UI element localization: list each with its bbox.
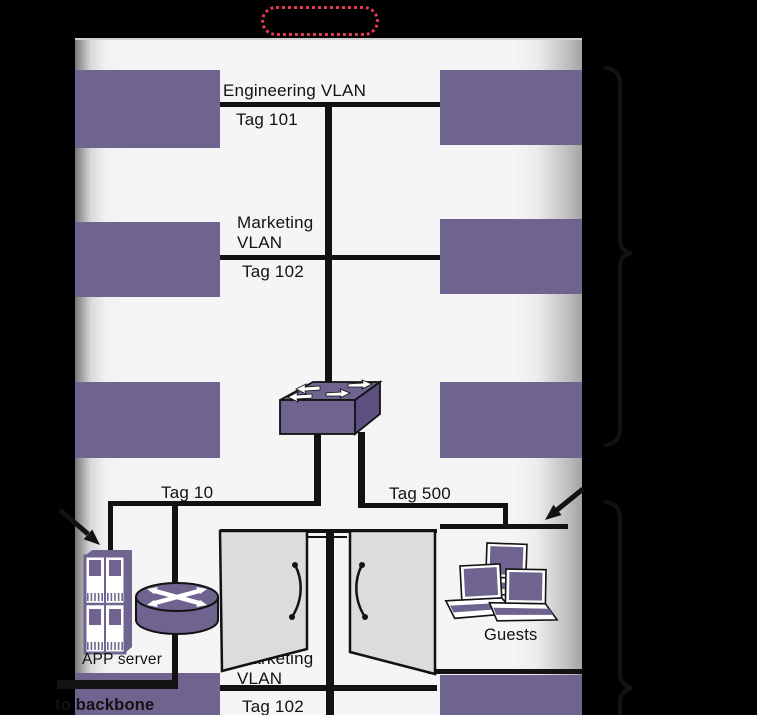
backbone-line xyxy=(57,680,178,689)
server-icon xyxy=(85,550,132,653)
brace-lobby xyxy=(606,502,632,715)
marketing-vlan-label: Marketing VLAN xyxy=(237,213,313,253)
tag-10-label: Tag 10 xyxy=(161,483,213,503)
pointer-arrow-left xyxy=(60,510,100,545)
floor-block xyxy=(440,219,582,294)
guest-drop-line xyxy=(503,503,508,527)
brace-upper-floors xyxy=(606,68,632,445)
server-drop-line xyxy=(108,501,113,556)
arrow-shaft xyxy=(557,489,583,510)
router-icon xyxy=(136,583,218,634)
floor-block xyxy=(440,382,582,458)
tag-102-label: Tag 102 xyxy=(242,262,304,282)
vlan-physical-diagram: Marketing VLAN xyxy=(0,0,757,715)
marketing-vlan-line1: Marketing xyxy=(237,213,313,233)
lobby-vlan-label: VLAN xyxy=(237,669,282,688)
floor-block xyxy=(440,675,582,715)
guest-floor-line xyxy=(428,669,582,674)
guest-segment-line xyxy=(440,524,568,529)
switch-icon xyxy=(280,380,380,434)
server-drive xyxy=(109,560,121,576)
trunk-line-upper xyxy=(325,102,332,384)
right-door xyxy=(350,531,435,674)
handle-dot xyxy=(289,614,295,620)
laptop-screen xyxy=(509,572,542,601)
handle-dot xyxy=(359,562,365,568)
server-drive xyxy=(89,560,101,576)
server-drive xyxy=(109,609,121,625)
floor-block xyxy=(75,222,220,297)
switch-front xyxy=(280,400,355,434)
app-server-label: APP server xyxy=(82,650,162,670)
guest-laptops-icon xyxy=(444,542,558,621)
marketing-vlan-line2: VLAN xyxy=(237,233,313,253)
arrow-shaft xyxy=(60,510,88,534)
tag-500-label: Tag 500 xyxy=(389,484,451,504)
engineering-vlan-label: Engineering VLAN xyxy=(223,81,366,101)
left-door xyxy=(220,531,307,671)
handle-dot xyxy=(362,614,368,620)
laptop-keys xyxy=(493,608,553,616)
handle-dot xyxy=(292,562,298,568)
server-drive xyxy=(89,609,101,625)
to-backbone-label: to backbone xyxy=(55,695,154,715)
floor-block xyxy=(440,70,582,145)
switch-right-leg xyxy=(358,432,365,508)
tag10-line xyxy=(108,501,321,506)
switch-left-leg xyxy=(314,432,321,506)
floor-block xyxy=(75,382,220,458)
pointer-arrow-right xyxy=(545,489,583,520)
floor-block xyxy=(75,70,220,148)
diagram-graphics: Marketing VLAN xyxy=(0,0,757,715)
laptop-screen xyxy=(464,567,498,597)
lobby-tag-102-label: Tag 102 xyxy=(242,697,304,715)
tag-101-label: Tag 101 xyxy=(236,110,298,130)
guests-label: Guests xyxy=(484,625,537,645)
